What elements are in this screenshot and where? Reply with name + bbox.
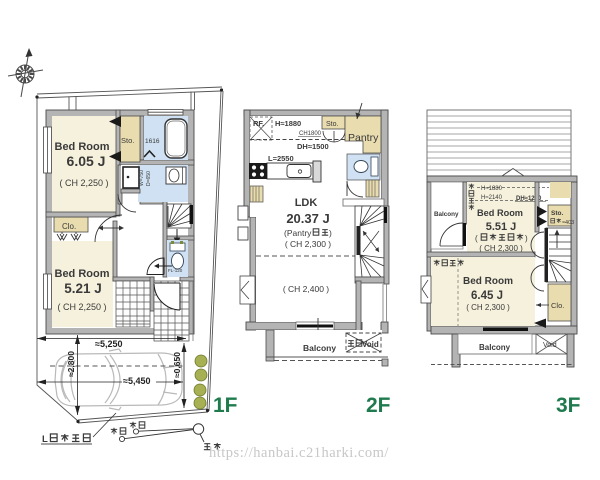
svg-text:RF.: RF. [253,119,264,128]
svg-text:(Pantry: (Pantry [284,228,312,238]
svg-text:https://hanbai.c21harki.com/: https://hanbai.c21harki.com/ [209,445,389,461]
svg-text:( CH 2,250 ): ( CH 2,250 ) [59,178,108,188]
svg-text:( CH 2,250 ): ( CH 2,250 ) [57,302,106,312]
svg-text:): ) [525,234,528,243]
svg-text:2F: 2F [366,394,391,417]
svg-text:Balcony: Balcony [303,343,336,353]
svg-text:6.45 J: 6.45 J [471,290,503,302]
svg-text:1F: 1F [213,394,238,417]
svg-text:Bed Room: Bed Room [55,268,110,280]
svg-text:H≈2140: H≈2140 [481,195,503,201]
svg-text:Pantry: Pantry [348,132,379,144]
svg-text:L: L [42,434,48,445]
svg-text:Clo.: Clo. [551,301,564,310]
svg-text:D=650: D=650 [146,171,152,186]
svg-text:Sto.: Sto. [551,210,563,217]
svg-text:W=750: W=750 [139,170,145,186]
svg-text:Balcony: Balcony [479,343,511,352]
svg-text:≈5,250: ≈5,250 [95,339,122,349]
svg-text:Clo.: Clo. [62,222,76,231]
svg-text:Balcony: Balcony [434,211,459,218]
svg-text:≈0,650: ≈0,650 [172,352,182,378]
svg-text:FL-120: FL-120 [168,268,183,273]
svg-text:( CH 2,300 ): ( CH 2,300 ) [285,239,331,249]
svg-text:5.21 J: 5.21 J [64,281,102,296]
svg-text:5.51 J: 5.51 J [486,221,517,233]
svg-text:≈5,450: ≈5,450 [123,376,150,386]
svg-text:Bed Room: Bed Room [55,141,110,153]
svg-text:Sto.: Sto. [326,121,339,128]
svg-text:6.05 J: 6.05 J [67,153,106,169]
svg-text:Void: Void [362,340,379,349]
svg-text:20.37 J: 20.37 J [286,211,329,226]
svg-text:H≈1880: H≈1880 [275,119,301,128]
svg-text:3F: 3F [556,394,581,417]
svg-text:Void: Void [543,342,557,349]
svg-text:( CH 2,400 ): ( CH 2,400 ) [283,284,329,294]
svg-text:): ) [329,228,332,238]
svg-text:DH≈1500: DH≈1500 [297,142,329,151]
svg-text:L=2550: L=2550 [268,154,294,163]
svg-text:CH1800: CH1800 [299,131,322,137]
svg-text:Sto.: Sto. [121,136,134,145]
svg-text:Bed Room: Bed Room [463,276,513,287]
svg-text:H≈1880: H≈1880 [481,186,503,192]
svg-text:LDK: LDK [295,197,318,209]
svg-text:Bed Room: Bed Room [477,208,523,218]
svg-text:≈403: ≈403 [562,220,574,226]
svg-text:1616: 1616 [145,138,160,145]
svg-text:(: ( [475,234,478,243]
svg-text:( CH 2,300 ): ( CH 2,300 ) [466,303,510,312]
svg-text:≈2,800: ≈2,800 [66,351,76,377]
